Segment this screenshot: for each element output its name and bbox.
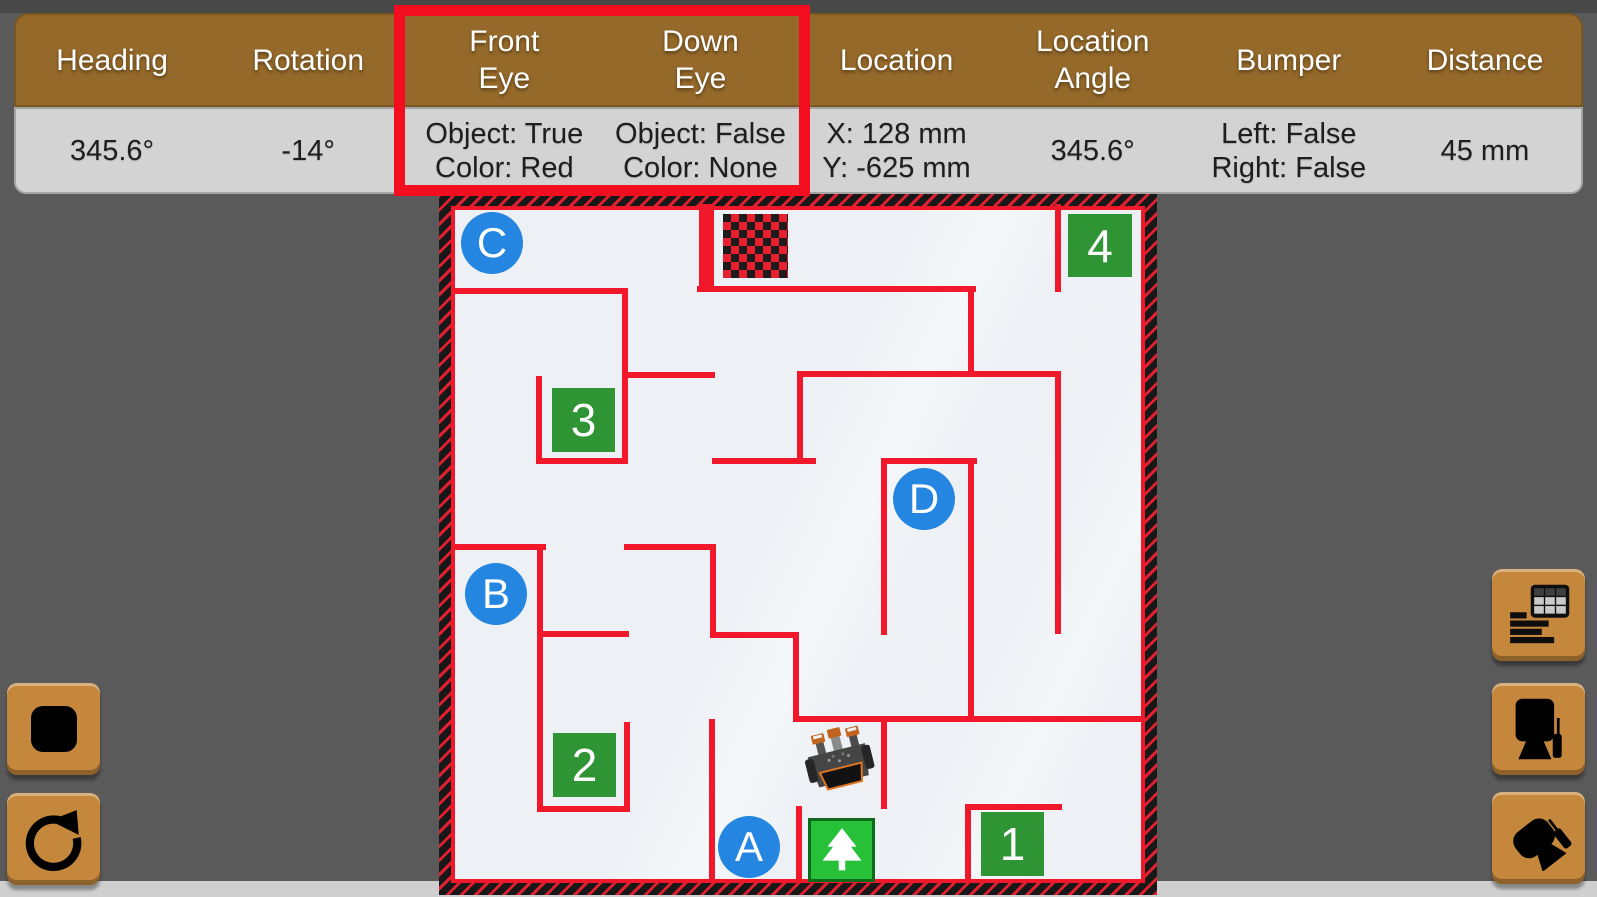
- tilted-camera-icon: [1506, 805, 1572, 871]
- status-value-row: 345.6°-14°Object: TrueColor: RedObject: …: [14, 107, 1583, 194]
- sensor-status-bar: HeadingRotationFrontEyeDownEyeLocationLo…: [14, 13, 1583, 194]
- column-header-location-angle: LocationAngle: [995, 13, 1191, 107]
- zone-3: 3: [552, 388, 615, 452]
- column-value-bumper: Left: FalseRight: False: [1191, 107, 1387, 194]
- checkpoint-C: C: [461, 212, 523, 274]
- column-header-location: Location: [799, 13, 995, 107]
- board-marker-icon: [1506, 696, 1572, 762]
- start-marker: [808, 818, 875, 882]
- status-header-row: HeadingRotationFrontEyeDownEyeLocationLo…: [14, 13, 1583, 107]
- column-value-location-angle: 345.6°: [995, 107, 1191, 194]
- column-value-down-eye: Object: FalseColor: None: [602, 107, 798, 194]
- column-header-rotation: Rotation: [210, 13, 406, 107]
- rotate-ccw-icon: [21, 806, 87, 872]
- column-value-location: X: 128 mmY: -625 mm: [799, 107, 995, 194]
- column-header-front-eye: FrontEye: [406, 13, 602, 107]
- stop-button[interactable]: [7, 683, 100, 775]
- column-header-bumper: Bumper: [1191, 13, 1387, 107]
- top-strip: [0, 0, 1597, 13]
- column-header-down-eye: DownEye: [602, 13, 798, 107]
- robot-icon: [798, 721, 878, 797]
- column-value-rotation: -14°: [210, 107, 406, 194]
- maze-items: 1234ABCD: [439, 194, 1157, 895]
- zone-4: 4: [1068, 214, 1132, 277]
- checkpoint-A: A: [718, 816, 780, 878]
- data-table-icon: [1506, 582, 1572, 648]
- checkpoint-D: D: [893, 468, 955, 530]
- column-value-distance: 45 mm: [1387, 107, 1583, 194]
- column-value-heading: 345.6°: [14, 107, 210, 194]
- zone-1: 1: [981, 812, 1044, 876]
- checkpoint-B: B: [465, 563, 527, 625]
- column-value-front-eye: Object: TrueColor: Red: [406, 107, 602, 194]
- maze-field: 1234ABCD: [439, 194, 1157, 895]
- stop-square-icon: [31, 706, 77, 752]
- data-table-button[interactable]: [1492, 569, 1585, 661]
- checkerboard-tile: [723, 214, 788, 278]
- start-arrow-icon: [816, 824, 868, 876]
- zone-2: 2: [553, 733, 616, 797]
- board-marker-button[interactable]: [1492, 683, 1585, 775]
- column-header-distance: Distance: [1387, 13, 1583, 107]
- column-header-heading: Heading: [14, 13, 210, 107]
- robot-sprite[interactable]: [798, 721, 878, 797]
- camera-view-button[interactable]: [1492, 792, 1585, 884]
- reset-button[interactable]: [7, 793, 100, 885]
